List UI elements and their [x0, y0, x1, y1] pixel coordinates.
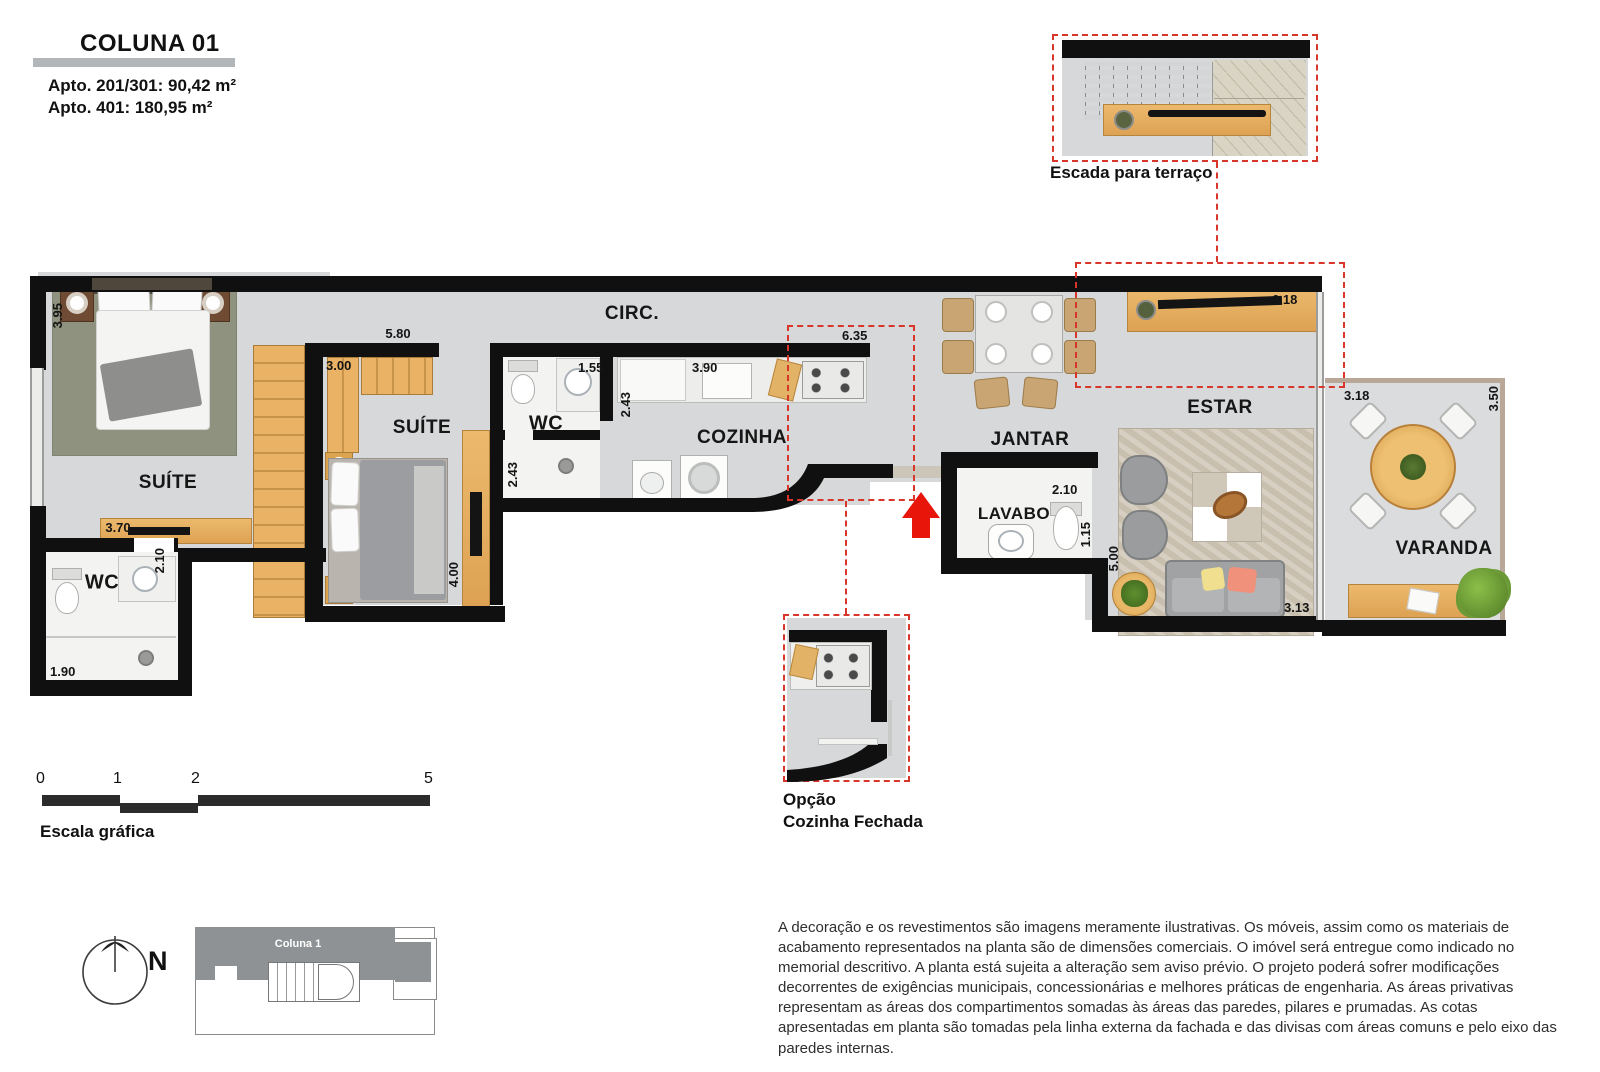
window	[30, 368, 44, 508]
entry-arrow-stem	[912, 518, 930, 538]
armchair	[1122, 510, 1168, 560]
scale-bar-segment	[120, 803, 198, 813]
disclaimer-text: A decoração e os revestimentos são image…	[778, 918, 1568, 1059]
key-plan-annex	[395, 942, 431, 982]
dim-label: 5.00	[1106, 546, 1121, 571]
toilet	[511, 374, 535, 404]
dim-label: 3.70	[105, 520, 130, 535]
wall	[323, 343, 439, 357]
dim-label: 1.55	[578, 360, 603, 375]
wall	[941, 452, 1098, 468]
chair	[1022, 376, 1059, 409]
plant-icon	[1400, 454, 1426, 480]
escada-inset-label: Escada para terraço	[1050, 163, 1213, 183]
dim-label: 2.43	[505, 462, 520, 487]
bed-blanket	[414, 466, 444, 594]
wall	[871, 630, 887, 722]
dim-label: 6.18	[1272, 292, 1297, 307]
scale-tick-5: 5	[424, 770, 433, 788]
title-underline	[33, 58, 235, 67]
dim-label: 2.43	[618, 392, 633, 417]
wall	[30, 276, 46, 370]
toilet	[55, 582, 79, 614]
toilet-tank	[52, 568, 82, 580]
dim-label: 6.35	[842, 328, 867, 343]
tank-basin	[640, 472, 664, 494]
scale-tick-2: 2	[191, 770, 200, 788]
room-label-wc1: WC	[85, 572, 119, 595]
dim-label: 2.10	[152, 548, 167, 573]
washer-door	[688, 462, 720, 494]
plant-icon	[1121, 580, 1148, 607]
chair	[942, 298, 974, 332]
dim-label: 3.00	[326, 358, 351, 373]
apto-area-1: Apto. 201/301: 90,42 m²	[48, 76, 236, 96]
room-label-wc2: WC	[529, 413, 563, 436]
dim-label: 3.18	[1344, 388, 1369, 403]
plate	[985, 301, 1007, 323]
dim-label: 1.15	[1078, 522, 1093, 547]
scale-tick-1: 1	[113, 770, 122, 788]
dim-label: 3.13	[1284, 600, 1309, 615]
stair-handrail	[1148, 110, 1266, 117]
key-plan-elevator	[318, 964, 354, 1000]
scale-bar-segment	[198, 795, 430, 806]
floor-plan-canvas: COLUNA 01 Apto. 201/301: 90,42 m² Apto. …	[0, 0, 1600, 1072]
stair-winder-line	[1214, 98, 1304, 99]
toilet	[1053, 506, 1079, 550]
lamp-icon	[66, 292, 88, 314]
wall	[30, 680, 192, 696]
shower-head-icon	[558, 458, 574, 474]
compass-north-label: N	[148, 946, 168, 977]
wall	[1062, 40, 1310, 58]
wall	[941, 452, 957, 574]
wall	[178, 552, 192, 692]
plant-icon	[1458, 568, 1508, 618]
escada-zone-box	[1075, 262, 1345, 388]
wardrobe	[253, 345, 305, 618]
armchair	[1120, 455, 1168, 505]
wall-headboard-shadow	[92, 278, 212, 290]
tv-icon	[128, 527, 190, 535]
plate	[1031, 343, 1053, 365]
toilet-tank	[508, 360, 538, 372]
room-label-suite2: SUÍTE	[393, 417, 451, 439]
scale-tick-0: 0	[36, 770, 45, 788]
wall	[1092, 616, 1322, 632]
dim-label: 3.50	[1486, 386, 1501, 411]
page-title: COLUNA 01	[80, 30, 220, 58]
dim-label: 1.90	[50, 664, 75, 679]
tv-icon	[470, 492, 482, 556]
plant-icon	[1114, 110, 1134, 130]
room-label-lavabo: LAVABO	[978, 504, 1050, 524]
sideboard-line	[818, 738, 878, 745]
closet	[361, 357, 433, 395]
escada-connector-line	[1216, 162, 1218, 262]
window	[888, 700, 892, 756]
cozinha-connector-line	[845, 501, 847, 614]
pillow-yellow	[1201, 567, 1226, 592]
dim-label: 4.00	[446, 562, 461, 587]
dim-label: 2.10	[1052, 482, 1077, 497]
dim-label: 3.95	[50, 303, 65, 328]
stove	[816, 645, 870, 687]
room-label-varanda: VARANDA	[1395, 538, 1492, 560]
plate	[985, 343, 1007, 365]
wall	[503, 498, 754, 512]
opcao-label-line1: Opção	[783, 790, 836, 810]
entry-arrow-icon	[902, 492, 940, 518]
room-label-cozinha: COZINHA	[697, 427, 787, 449]
wall	[305, 343, 323, 622]
shower-head-icon	[138, 650, 154, 666]
opcao-label-line2: Cozinha Fechada	[783, 812, 923, 832]
apto-area-2: Apto. 401: 180,95 m²	[48, 98, 212, 118]
sink	[998, 530, 1024, 552]
room-label-jantar: JANTAR	[991, 429, 1070, 451]
scale-bar-segment	[42, 795, 120, 806]
wall	[178, 548, 326, 562]
pillow	[330, 508, 360, 553]
room-label-suite1: SUÍTE	[139, 472, 197, 494]
wall	[941, 558, 1108, 574]
chair	[942, 340, 974, 374]
wall	[305, 606, 505, 622]
pillow	[330, 462, 360, 507]
room-label-estar: ESTAR	[1187, 397, 1252, 419]
scale-bar-label: Escala gráfica	[40, 822, 154, 842]
wall	[1322, 620, 1506, 636]
dim-label: 5.80	[385, 326, 410, 341]
wall	[600, 343, 613, 421]
pillow-coral	[1227, 567, 1257, 594]
cozinha-zone-box	[787, 325, 915, 501]
wall	[490, 343, 503, 605]
key-plan-label: Coluna 1	[275, 938, 321, 950]
chair	[974, 376, 1011, 409]
plate	[1031, 301, 1053, 323]
key-plan-notch	[215, 966, 237, 982]
dim-label: 3.90	[692, 360, 717, 375]
wall	[30, 552, 46, 696]
room-label-circ: CIRC.	[605, 303, 659, 325]
shower-divider	[46, 636, 176, 638]
